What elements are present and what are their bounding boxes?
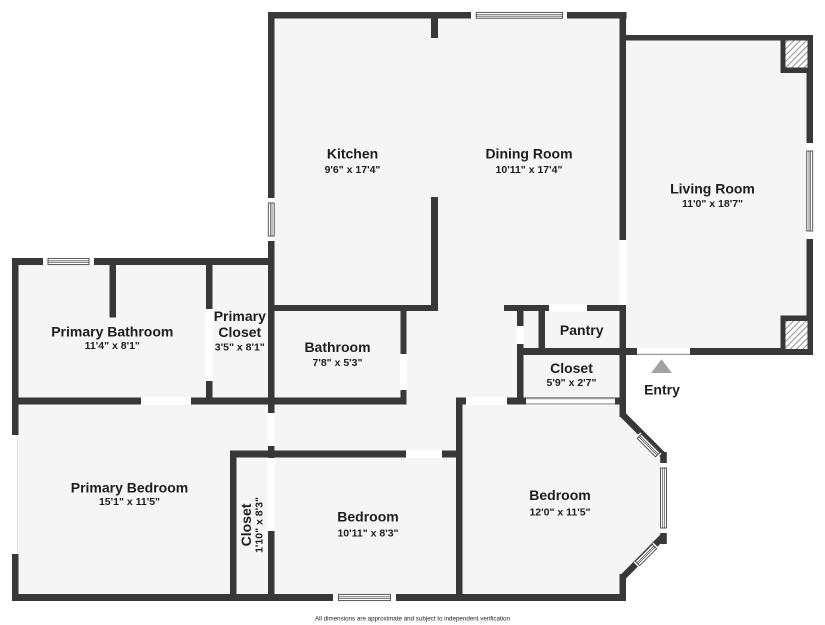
svg-text:Kitchen: Kitchen [327, 146, 378, 162]
svg-text:10'11" x 8'3": 10'11" x 8'3" [337, 528, 398, 540]
svg-text:Bedroom: Bedroom [337, 509, 398, 525]
svg-text:7'8" x 5'3": 7'8" x 5'3" [313, 357, 363, 369]
svg-text:5'9" x 2'7": 5'9" x 2'7" [547, 377, 597, 389]
svg-text:Primary: Primary [214, 308, 266, 324]
svg-text:12'0" x 11'5": 12'0" x 11'5" [529, 507, 590, 519]
svg-text:Pantry: Pantry [560, 322, 604, 338]
svg-text:Closet: Closet [218, 324, 261, 340]
svg-text:Bedroom: Bedroom [529, 487, 590, 503]
svg-text:Living Room: Living Room [670, 181, 755, 197]
svg-text:All dimensions are approximate: All dimensions are approximate and subje… [315, 616, 510, 623]
svg-text:Dining Room: Dining Room [485, 146, 572, 162]
svg-text:Primary Bathroom: Primary Bathroom [51, 324, 173, 340]
svg-text:3'5" x 8'1": 3'5" x 8'1" [215, 342, 265, 354]
svg-text:15'1" x 11'5": 15'1" x 11'5" [99, 496, 160, 508]
svg-text:Closet: Closet [238, 503, 254, 546]
svg-text:Primary Bedroom: Primary Bedroom [71, 480, 188, 496]
svg-text:Closet: Closet [550, 360, 593, 376]
svg-text:11'4" x 8'1": 11'4" x 8'1" [85, 340, 140, 352]
svg-text:Bathroom: Bathroom [304, 339, 370, 355]
svg-text:11'0" x 18'7": 11'0" x 18'7" [682, 198, 743, 210]
svg-text:Entry: Entry [644, 382, 680, 398]
svg-text:10'11" x 17'4": 10'11" x 17'4" [496, 164, 563, 176]
svg-text:1'10" x 8'3": 1'10" x 8'3" [254, 497, 266, 553]
svg-text:9'6" x 17'4": 9'6" x 17'4" [325, 164, 381, 176]
